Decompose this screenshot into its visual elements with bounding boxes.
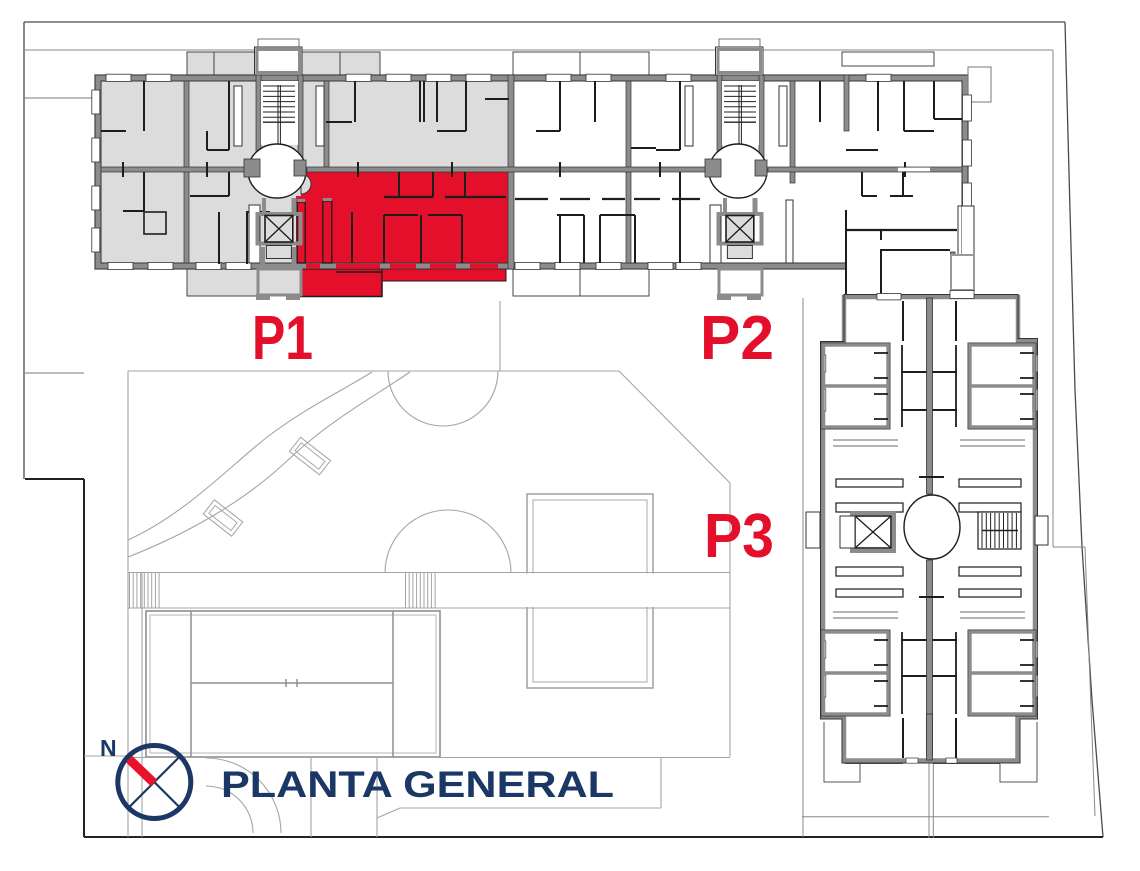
svg-text:P1: P1	[252, 304, 313, 373]
svg-text:P2: P2	[700, 304, 774, 373]
svg-text:P3: P3	[704, 502, 774, 571]
svg-text:N: N	[100, 735, 117, 761]
svg-text:PLANTA GENERAL: PLANTA GENERAL	[221, 763, 614, 805]
